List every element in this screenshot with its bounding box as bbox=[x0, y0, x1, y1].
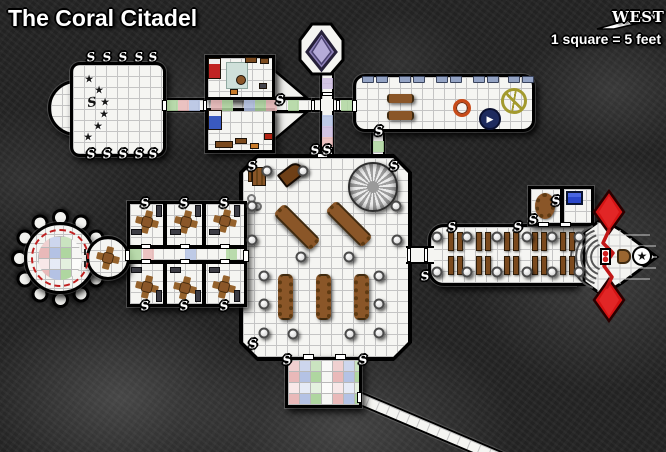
pew bbox=[485, 256, 491, 275]
door bbox=[180, 244, 190, 249]
pillar bbox=[298, 166, 309, 177]
door bbox=[560, 222, 571, 227]
secret-door-marker: S bbox=[354, 352, 372, 368]
pew bbox=[532, 232, 538, 251]
secret-door-marker: S bbox=[215, 195, 233, 211]
crystal-spire bbox=[296, 20, 346, 78]
sofa bbox=[215, 141, 233, 148]
banquet-table bbox=[316, 274, 331, 320]
pillar bbox=[547, 267, 558, 278]
pew bbox=[513, 232, 519, 251]
bench bbox=[399, 76, 411, 83]
door bbox=[336, 100, 340, 111]
secret-door-marker: S bbox=[144, 49, 162, 65]
secret-door-marker: S bbox=[136, 298, 154, 314]
pillar bbox=[259, 299, 270, 310]
pillar bbox=[574, 232, 585, 243]
pew bbox=[504, 232, 510, 251]
bench bbox=[450, 76, 462, 83]
secret-door-marker: S bbox=[215, 298, 233, 314]
secret-door-marker: S bbox=[244, 336, 262, 352]
pillar bbox=[492, 267, 503, 278]
pillar bbox=[492, 232, 503, 243]
pillar bbox=[259, 271, 270, 282]
secret-door-marker: S bbox=[370, 123, 388, 139]
table bbox=[387, 94, 414, 103]
door bbox=[125, 250, 130, 261]
pew bbox=[504, 256, 510, 275]
pillar bbox=[345, 329, 356, 340]
pew bbox=[560, 232, 566, 251]
floor-tile bbox=[255, 100, 266, 111]
pew bbox=[476, 232, 482, 251]
pillar bbox=[296, 252, 307, 263]
bench bbox=[508, 76, 520, 83]
door bbox=[424, 248, 428, 262]
cell-wall bbox=[202, 201, 206, 248]
pillar bbox=[288, 329, 299, 340]
scale-label: 1 square = 5 feet bbox=[527, 31, 661, 47]
pew bbox=[448, 256, 454, 275]
pew bbox=[532, 256, 538, 275]
curtain-line bbox=[84, 249, 87, 267]
corridor-diagonal bbox=[353, 390, 508, 452]
pillar bbox=[247, 201, 258, 212]
door bbox=[220, 244, 230, 249]
round-table bbox=[236, 75, 246, 85]
secret-door-marker: S bbox=[278, 352, 296, 368]
page-title: The Coral Citadel bbox=[8, 5, 197, 32]
secret-door-marker: S bbox=[175, 298, 193, 314]
table bbox=[387, 111, 414, 120]
floor-tile bbox=[189, 100, 200, 111]
bench bbox=[487, 76, 499, 83]
desk bbox=[209, 229, 220, 235]
mosaic-floor bbox=[38, 236, 82, 280]
play-icon: ▶ bbox=[487, 114, 494, 124]
pew bbox=[485, 232, 491, 251]
floor-tile bbox=[130, 249, 141, 260]
desk bbox=[234, 205, 240, 217]
secret-door-marker: S bbox=[547, 193, 565, 209]
door bbox=[357, 392, 362, 403]
floor-tile bbox=[244, 100, 255, 111]
side-table bbox=[259, 83, 267, 89]
star-glyph: ★ bbox=[99, 110, 109, 121]
door bbox=[335, 354, 346, 360]
secret-door-marker: S bbox=[136, 195, 154, 211]
bench bbox=[473, 76, 485, 83]
bench bbox=[413, 76, 425, 83]
star-icon: ★ bbox=[637, 249, 648, 263]
floor-tile bbox=[222, 100, 233, 111]
secret-door-marker: S bbox=[524, 212, 542, 228]
desk bbox=[234, 290, 240, 302]
desk bbox=[195, 290, 201, 302]
floor-tile bbox=[167, 100, 178, 111]
bench bbox=[436, 76, 448, 83]
chest-red bbox=[264, 133, 273, 140]
blue-chest bbox=[566, 191, 583, 205]
star-glyph: ★ bbox=[100, 98, 110, 109]
junction-floor bbox=[321, 99, 333, 111]
disc-symbol: ▶ bbox=[479, 108, 501, 130]
checkered-room bbox=[285, 357, 362, 408]
pillar bbox=[374, 328, 385, 339]
altar bbox=[600, 248, 611, 265]
pew bbox=[448, 232, 454, 251]
throne-chair bbox=[617, 249, 631, 264]
secret-door-marker: S bbox=[416, 268, 434, 284]
pew bbox=[476, 256, 482, 275]
desk bbox=[195, 205, 201, 217]
banquet-table bbox=[354, 274, 369, 320]
chair bbox=[250, 143, 259, 149]
door bbox=[203, 100, 207, 111]
floor-tile bbox=[178, 100, 189, 111]
door bbox=[141, 244, 151, 249]
dresser bbox=[245, 57, 257, 63]
desk bbox=[131, 229, 142, 235]
secret-door-marker: S bbox=[443, 219, 461, 235]
pillar bbox=[247, 235, 258, 246]
cell-wall bbox=[163, 201, 167, 248]
pillar bbox=[547, 232, 558, 243]
dresser bbox=[260, 58, 269, 64]
pillar bbox=[522, 267, 533, 278]
secret-door-marker: S bbox=[385, 158, 403, 174]
bench bbox=[522, 76, 534, 83]
floor-tile bbox=[322, 126, 333, 137]
pillar bbox=[374, 271, 385, 282]
door bbox=[352, 100, 357, 112]
compass-west-label: WEST bbox=[612, 8, 664, 26]
bench bbox=[362, 76, 374, 83]
secret-door-marker: S bbox=[243, 158, 261, 174]
pew bbox=[560, 256, 566, 275]
star-glyph: ★ bbox=[83, 133, 93, 144]
floor-tile bbox=[322, 78, 333, 89]
secret-door-marker: S bbox=[271, 92, 289, 108]
dungeon-map: ★ ★ ★ ★ ★ ★ ▶ bbox=[0, 0, 666, 452]
bed-red bbox=[208, 58, 221, 79]
desk bbox=[170, 267, 181, 273]
floor-tile bbox=[288, 100, 299, 111]
door bbox=[162, 100, 167, 111]
pillar bbox=[344, 252, 355, 263]
desk bbox=[156, 290, 162, 302]
wheel-symbol bbox=[501, 88, 527, 114]
pillar bbox=[432, 232, 443, 243]
door bbox=[407, 248, 411, 262]
secret-door-marker: S bbox=[144, 146, 162, 162]
door bbox=[220, 259, 230, 264]
floor-tile bbox=[373, 141, 384, 152]
sofa bbox=[235, 138, 247, 144]
pillar bbox=[462, 232, 473, 243]
pillar bbox=[391, 201, 402, 212]
cell-wall bbox=[202, 260, 206, 307]
banquet-table bbox=[278, 274, 293, 320]
star-glyph: ★ bbox=[93, 122, 103, 133]
door bbox=[303, 354, 314, 360]
door bbox=[243, 250, 249, 262]
desk bbox=[170, 229, 181, 235]
star-glyph: ★ bbox=[84, 75, 94, 86]
ring-symbol bbox=[453, 99, 471, 117]
pew bbox=[513, 256, 519, 275]
bench bbox=[376, 76, 388, 83]
door bbox=[180, 259, 190, 264]
desk bbox=[156, 205, 162, 217]
bed-blue bbox=[208, 110, 222, 130]
secret-door-marker: S bbox=[175, 195, 193, 211]
secret-door-marker: S bbox=[318, 142, 336, 158]
chair bbox=[230, 89, 238, 95]
pillar bbox=[262, 166, 273, 177]
pillar bbox=[462, 267, 473, 278]
cell-wall bbox=[163, 260, 167, 307]
desk bbox=[131, 267, 142, 273]
pillar bbox=[392, 235, 403, 246]
floor-tile bbox=[341, 100, 352, 111]
star-emblem: ★ bbox=[632, 246, 652, 266]
desk bbox=[209, 267, 220, 273]
floor-tile bbox=[322, 115, 333, 126]
pillar bbox=[574, 267, 585, 278]
door bbox=[141, 259, 151, 264]
secret-door-marker: S bbox=[83, 94, 101, 111]
door bbox=[322, 92, 333, 96]
door bbox=[311, 100, 315, 111]
pillar bbox=[374, 299, 385, 310]
